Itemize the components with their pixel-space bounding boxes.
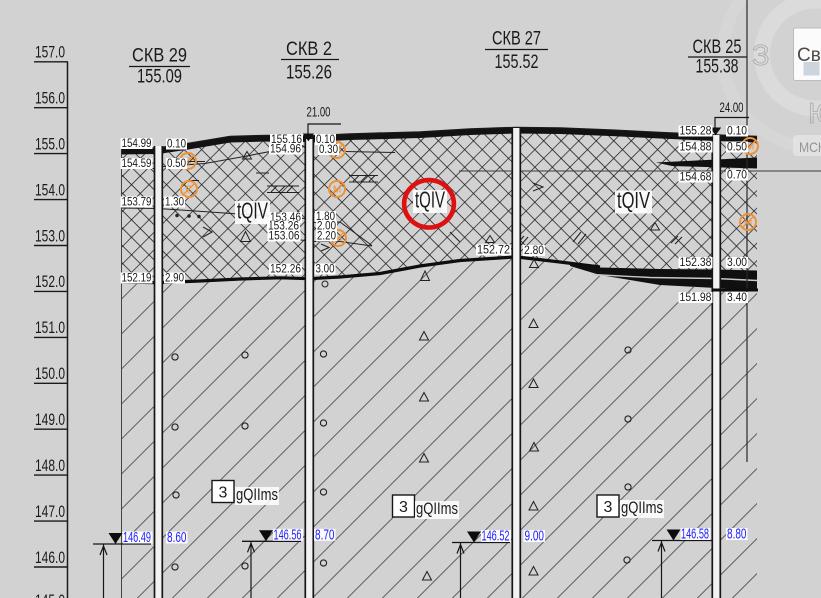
svg-text:146.49: 146.49 [123,530,151,546]
svg-text:146.58: 146.58 [681,527,709,543]
svg-text:Све: Све [797,45,821,66]
svg-text:0.10: 0.10 [727,124,747,138]
svg-text:153.06: 153.06 [269,229,300,243]
svg-text:tQIV: tQIV [415,187,445,213]
svg-text:СКВ 29: СКВ 29 [132,46,187,67]
svg-text:153.0: 153.0 [35,226,65,245]
svg-text:145.0: 145.0 [35,591,65,598]
svg-text:0.10: 0.10 [167,137,186,151]
svg-text:146.0: 146.0 [35,548,65,567]
svg-text:2.20: 2.20 [317,229,336,243]
svg-text:tQIV: tQIV [617,187,650,213]
svg-text:150.0: 150.0 [35,364,65,383]
svg-text:0.70: 0.70 [727,168,747,182]
svg-text:155.28: 155.28 [680,124,712,138]
svg-text:0.30: 0.30 [319,142,338,156]
svg-text:gQIIms: gQIIms [236,485,278,504]
svg-text:24.00: 24.00 [720,99,744,115]
svg-text:3: 3 [604,499,613,516]
svg-text:М: М [744,218,752,229]
svg-text:152.38: 152.38 [680,255,712,269]
svg-text:9.00: 9.00 [525,529,545,545]
svg-text:156.0: 156.0 [35,89,65,108]
svg-text:1.30: 1.30 [165,195,184,209]
svg-text:tQIV: tQIV [237,198,268,224]
svg-text:3.40: 3.40 [727,290,747,304]
svg-text:СКВ 2: СКВ 2 [286,39,332,60]
svg-text:149.0: 149.0 [35,410,65,429]
svg-text:154.68: 154.68 [680,170,712,184]
svg-text:155.0: 155.0 [35,134,65,153]
svg-text:154.0: 154.0 [35,180,65,199]
svg-text:152.0: 152.0 [35,272,65,291]
svg-text:СКВ 25: СКВ 25 [693,37,742,58]
svg-text:0.50: 0.50 [167,156,186,170]
svg-text:154.59: 154.59 [122,156,152,170]
svg-text:8.60: 8.60 [167,530,187,546]
svg-text:146.56: 146.56 [274,527,302,543]
svg-text:154.99: 154.99 [122,136,152,150]
svg-text:21.00: 21.00 [307,104,331,120]
svg-text:МСК: МСК [799,139,821,155]
svg-text:Ю: Ю [808,98,821,130]
svg-text:151.0: 151.0 [35,318,65,337]
svg-text:155.26: 155.26 [286,63,332,84]
svg-text:155.38: 155.38 [696,57,739,78]
svg-text:8.80: 8.80 [727,527,747,543]
svg-text:157.0: 157.0 [35,43,65,62]
svg-text:8.70: 8.70 [315,527,335,543]
svg-text:146.52: 146.52 [482,529,510,545]
svg-text:148.0: 148.0 [35,456,65,475]
svg-text:2.80: 2.80 [524,243,544,257]
svg-text:153.79: 153.79 [122,195,152,209]
svg-text:3: 3 [219,485,228,502]
svg-text:М: М [333,185,341,196]
svg-text:147.0: 147.0 [35,502,65,521]
svg-text:3.00: 3.00 [316,262,335,276]
svg-text:155.52: 155.52 [495,52,539,73]
svg-text:155.09: 155.09 [137,67,182,88]
svg-text:152.19: 152.19 [122,271,152,285]
svg-text:СКВ 27: СКВ 27 [492,29,541,50]
svg-text:151.98: 151.98 [680,290,712,304]
svg-text:2.90: 2.90 [165,271,184,285]
svg-text:gQIIms: gQIIms [621,498,663,517]
svg-text:3: 3 [399,499,408,516]
svg-text:З: З [752,40,770,72]
svg-text:154.96: 154.96 [270,142,301,156]
svg-text:С: С [185,185,192,196]
svg-text:gQIIms: gQIIms [416,499,458,518]
svg-text:0.50: 0.50 [727,140,747,154]
svg-text:152.72: 152.72 [477,243,510,257]
svg-text:154.88: 154.88 [680,140,712,154]
svg-text:3.00: 3.00 [727,255,747,269]
svg-text:152.26: 152.26 [270,262,301,276]
